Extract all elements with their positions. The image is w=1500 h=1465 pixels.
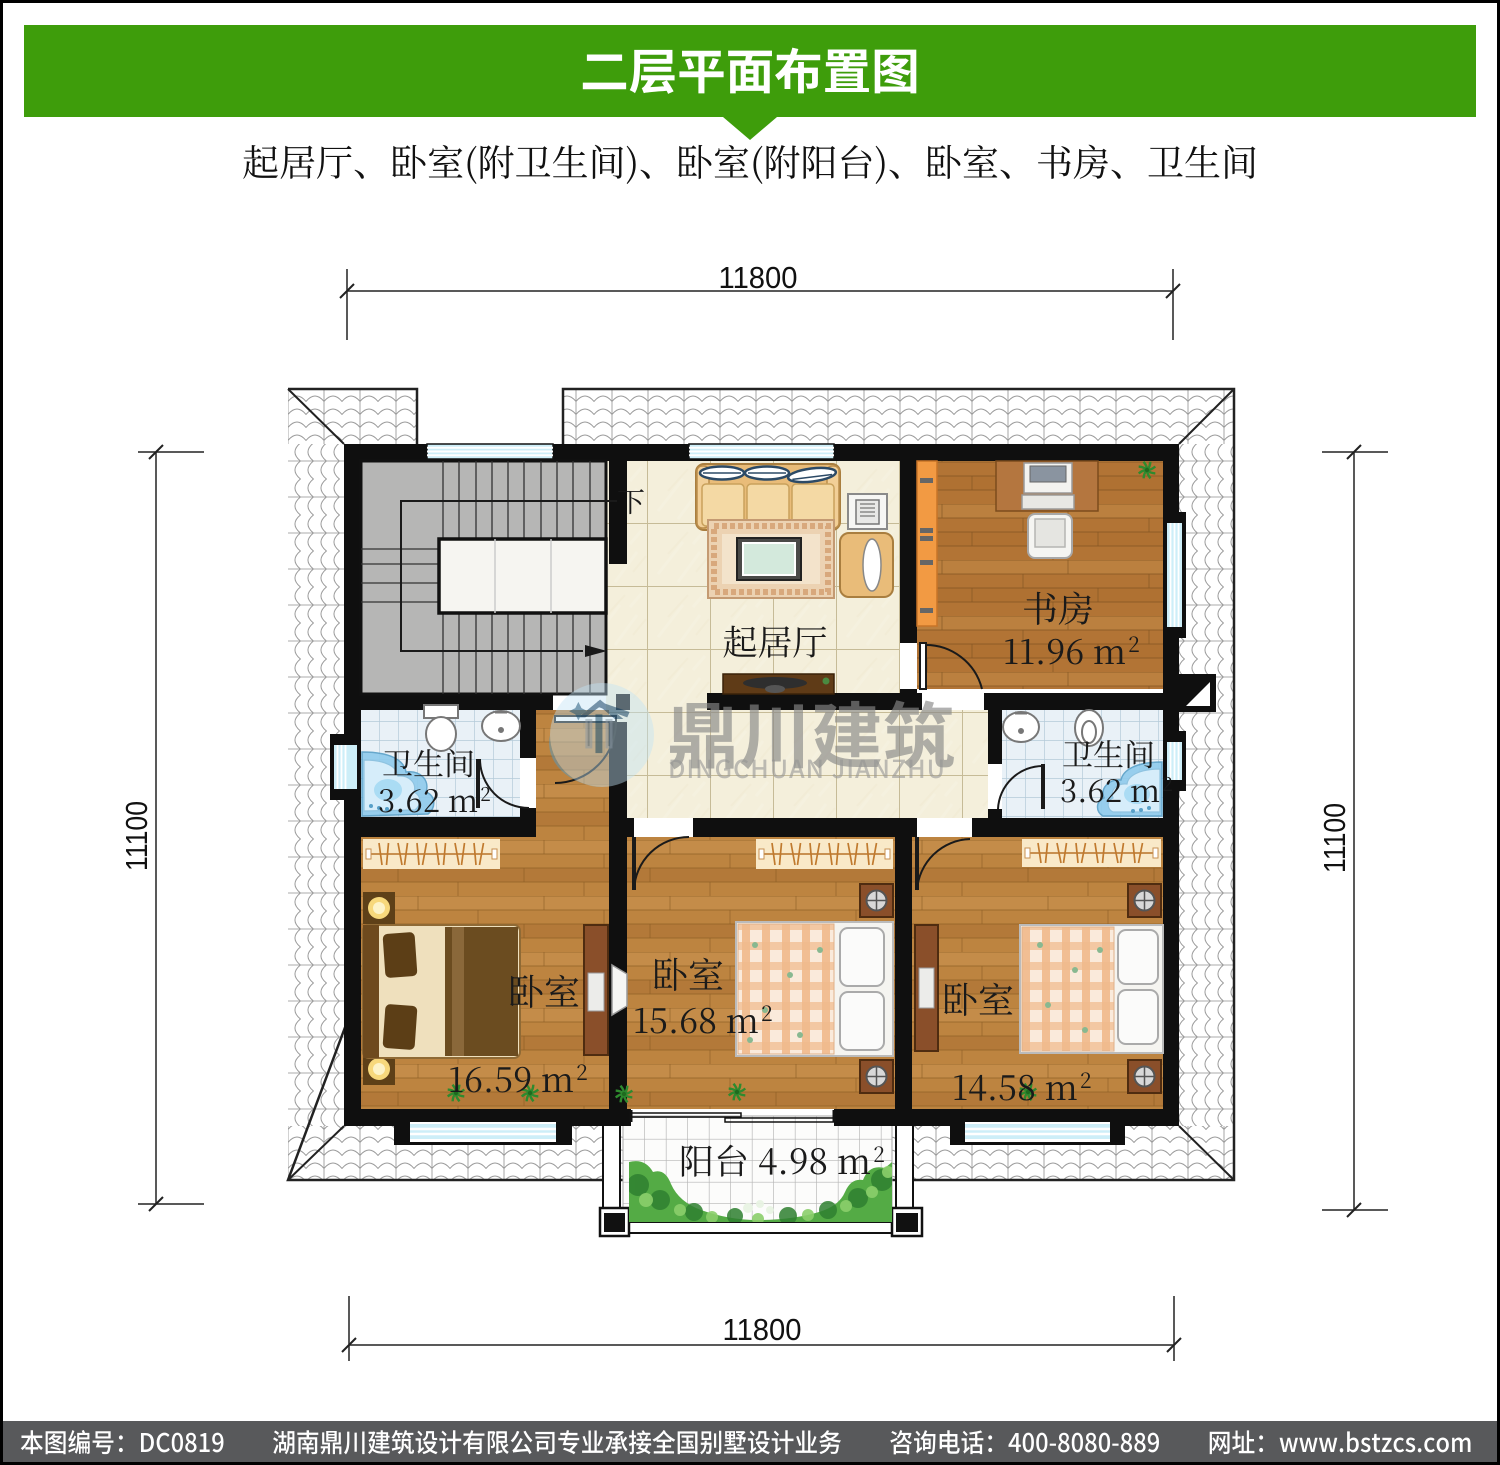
svg-text:11100: 11100 [119,801,154,871]
svg-text:11800: 11800 [719,260,798,295]
svg-text:11800: 11800 [723,1312,802,1347]
svg-text:11100: 11100 [1317,803,1352,873]
